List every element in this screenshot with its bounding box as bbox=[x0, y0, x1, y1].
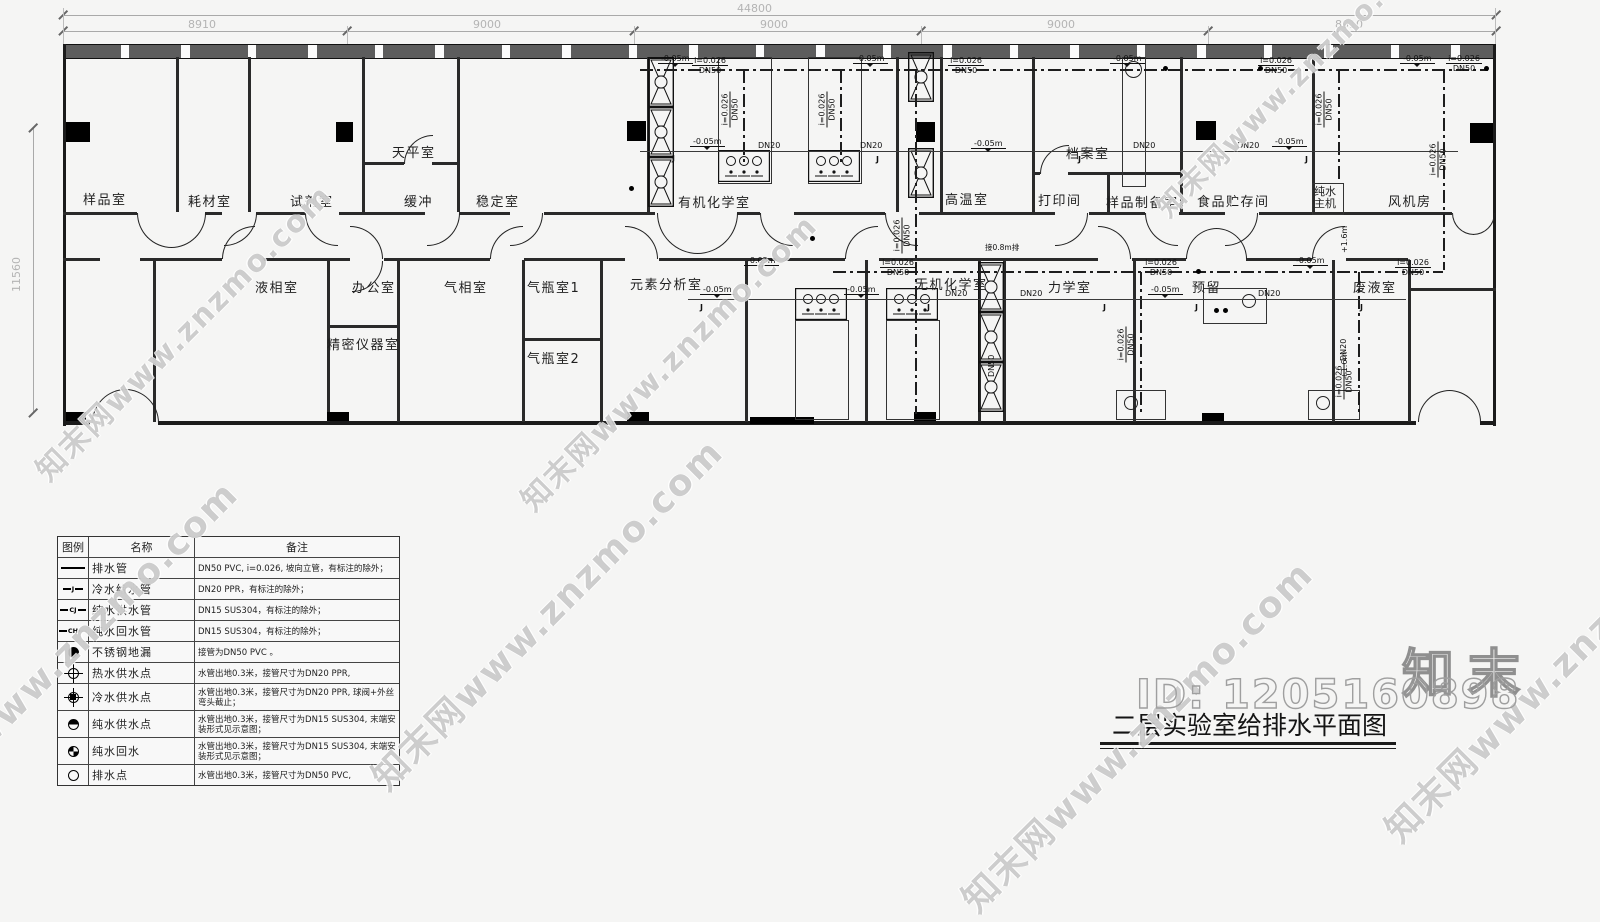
wall bbox=[339, 212, 425, 215]
elevation-marker: -0.05m bbox=[1400, 54, 1435, 64]
dim-total-label: 44800 bbox=[737, 2, 772, 15]
elevation-marker: -0.05m bbox=[1110, 54, 1145, 64]
pipe-slope-size-label: i=0.026DN50 bbox=[1446, 54, 1482, 73]
column bbox=[327, 412, 349, 421]
legend-note: 接管为DN50 PVC 。 bbox=[198, 646, 278, 658]
legend-name: 纯水供水点 bbox=[88, 711, 194, 737]
slope-label: i=0.026 bbox=[880, 258, 916, 268]
cold-water-pipe bbox=[688, 299, 1406, 300]
room-label-precision-instrument: 精密仪器室 bbox=[327, 334, 400, 353]
cold-water-mark: J bbox=[927, 303, 930, 312]
pipe-size-label: DN20 bbox=[758, 141, 780, 150]
legend-note: DN15 SUS304，有标注的除外； bbox=[198, 625, 326, 637]
room-label-food-storage: 食品贮存间 bbox=[1197, 191, 1270, 210]
pipe-slope-size-label: i=0.026DN50 bbox=[893, 218, 912, 254]
pipe-size-label: DN50 bbox=[987, 355, 996, 377]
door-arc bbox=[845, 226, 878, 259]
legend-symbol-drain-line bbox=[58, 558, 88, 578]
door-arc bbox=[657, 213, 698, 254]
sink-bench-icon bbox=[808, 150, 860, 182]
pure-water-return-icon bbox=[68, 746, 79, 757]
legend-name: 纯水回水 bbox=[88, 738, 194, 764]
sink-bench-icon bbox=[795, 288, 847, 320]
legend-note: 水管出地0.3米，接管尺寸为DN50 PVC, bbox=[198, 769, 351, 781]
dim-seg-label: 9000 bbox=[473, 18, 501, 31]
pipe-size-label: DN50 bbox=[903, 218, 912, 254]
room-label-reserved: 预留 bbox=[1192, 277, 1221, 296]
elevation-marker: -0.05m bbox=[658, 54, 693, 64]
pipe-slope-size-label: i=0.026DN50 bbox=[880, 258, 916, 277]
room-label-gas-phase: 气相室 bbox=[444, 277, 488, 296]
pipe-size-label: DN20 bbox=[1258, 289, 1280, 298]
wall bbox=[1089, 212, 1145, 215]
room-label-fan-room: 风机房 bbox=[1388, 191, 1432, 210]
column bbox=[1470, 123, 1493, 143]
elevation-marker: -0.05m bbox=[1272, 137, 1307, 147]
pipe-size-label: DN50 bbox=[1395, 268, 1431, 277]
cold-water-pipe bbox=[640, 151, 1458, 152]
wall bbox=[919, 212, 1055, 215]
pipe-slope-size-label: i=0.026DN50 bbox=[721, 92, 740, 128]
elevation-marker: -0.05m bbox=[1293, 256, 1328, 266]
legend-row: 热水供水点 水管出地0.3米，接管尺寸为DN20 PPR, bbox=[58, 662, 399, 683]
cold-water-point-icon bbox=[68, 692, 79, 703]
tap-point-icon bbox=[1223, 308, 1228, 313]
connection-note: 接0.8m排 bbox=[985, 243, 1019, 252]
room-label-balance: 天平室 bbox=[392, 142, 436, 161]
cold-water-mark: J bbox=[876, 155, 879, 164]
floor-drain-icon bbox=[1163, 66, 1168, 71]
room-label-print-room: 打印间 bbox=[1038, 190, 1082, 209]
pipe-size-label: DN20 bbox=[1133, 141, 1155, 150]
wall bbox=[544, 212, 655, 215]
door-arc bbox=[1473, 213, 1495, 235]
watermark-id: ID: 1205160898 bbox=[1136, 672, 1520, 718]
room-label-office: 办公室 bbox=[352, 277, 396, 296]
slope-label: i=0.026 bbox=[1315, 92, 1325, 128]
room-label-gas-cylinder-2: 气瓶室2 bbox=[527, 348, 580, 367]
pipe-size-label: DN50 bbox=[828, 92, 837, 128]
drain-pipe bbox=[640, 69, 1488, 71]
wall bbox=[1408, 260, 1411, 422]
fume-hood-icon bbox=[648, 157, 674, 207]
pipe-slope-size-label: i=0.026DN50 bbox=[948, 56, 984, 75]
drain-pipe bbox=[915, 70, 917, 414]
legend-header-symbol: 图例 bbox=[58, 537, 88, 557]
elevation-marker: -0.05m bbox=[971, 139, 1006, 149]
exterior-wall-left bbox=[63, 44, 66, 426]
room-label-waste-liquid: 废液室 bbox=[1353, 277, 1397, 296]
door-arc bbox=[1055, 213, 1088, 246]
pipe-slope-size-label: i=0.026DN50 bbox=[692, 56, 728, 75]
pipe-slope-size-label: i=0.026DN50 bbox=[1143, 258, 1179, 277]
legend-note: DN15 SUS304，有标注的除外； bbox=[198, 604, 326, 616]
pipe-slope-size-label: i=0.026DN50 bbox=[1395, 258, 1431, 277]
cold-water-mark: J bbox=[1305, 155, 1308, 164]
pipe-slope-size-label: i=0.026DN50 bbox=[1429, 142, 1448, 178]
wall bbox=[522, 338, 602, 341]
wall bbox=[362, 57, 365, 212]
pipe-size-label: DN50 bbox=[1127, 327, 1136, 363]
column bbox=[627, 121, 646, 141]
elevation-marker: -0.05m bbox=[690, 137, 725, 147]
pipe-slope-size-label: i=0.026DN50 bbox=[1315, 92, 1334, 128]
drain-pipe bbox=[833, 271, 1443, 273]
drain-pipe bbox=[1140, 272, 1142, 412]
pipe-slope-size-label: i=0.026DN50 bbox=[818, 92, 837, 128]
filled-center bbox=[70, 694, 76, 700]
dim-extension bbox=[1208, 26, 1209, 44]
legend-note: DN50 PVC, i=0.026, 坡向立管，有标注的除外； bbox=[198, 562, 388, 574]
fume-hood-icon bbox=[908, 48, 934, 106]
lab-bench bbox=[795, 320, 849, 420]
pipe-size-label: DN50 bbox=[692, 66, 728, 75]
slope-label: i=0.026 bbox=[721, 92, 731, 128]
legend-row: 冷水供水点 水管出地0.3米，接管尺寸为DN20 PPR, 球阀+外丝弯头截止； bbox=[58, 683, 399, 710]
slope-label: i=0.026 bbox=[1395, 258, 1431, 268]
legend-name: 排水点 bbox=[88, 765, 194, 785]
dim-extension bbox=[1495, 8, 1496, 44]
slope-label: i=0.026 bbox=[1429, 142, 1439, 178]
wall bbox=[737, 212, 760, 215]
drain-point-icon bbox=[1316, 396, 1330, 410]
door-arc bbox=[1098, 226, 1131, 259]
wall bbox=[522, 260, 525, 422]
wall bbox=[362, 162, 404, 165]
legend-note: 水管出地0.3米，接管尺寸为DN15 SUS304, 末端安装形式见示意图； bbox=[198, 713, 396, 735]
pipe-size-label: DN50 bbox=[880, 268, 916, 277]
dim-seg-label: 9000 bbox=[760, 18, 788, 31]
wall bbox=[63, 258, 100, 261]
drain-point-icon bbox=[1242, 294, 1256, 308]
wall bbox=[459, 212, 510, 215]
pipe-size-label: DN50 bbox=[1143, 268, 1179, 277]
wall bbox=[176, 57, 179, 212]
column bbox=[66, 122, 90, 142]
wall bbox=[63, 212, 137, 215]
tap-point-icon bbox=[1214, 308, 1219, 313]
legend-note: 水管出地0.3米，接管尺寸为DN20 PPR, 球阀+外丝弯头截止； bbox=[198, 686, 396, 708]
door-arc bbox=[1040, 145, 1069, 174]
drain-point-icon bbox=[68, 770, 79, 781]
floor-drain-icon bbox=[1196, 269, 1201, 274]
legend-symbol-pure-return-point bbox=[58, 738, 88, 764]
room-label-consumables: 耗材室 bbox=[188, 191, 232, 210]
legend-row: 纯水供水点 水管出地0.3米，接管尺寸为DN15 SUS304, 末端安装形式见… bbox=[58, 710, 399, 737]
cold-water-mark: J bbox=[672, 154, 675, 163]
door-arc bbox=[171, 213, 206, 248]
dim-extension bbox=[921, 26, 922, 44]
dim-line-segments bbox=[63, 31, 1496, 32]
dim-extension bbox=[634, 26, 635, 44]
slope-label: i=0.026 bbox=[1143, 258, 1179, 268]
elevation-marker: -0.05m bbox=[1148, 285, 1183, 295]
pipe-size-label: DN50 bbox=[731, 92, 740, 128]
room-label-elemental-analysis: 元素分析室 bbox=[630, 274, 703, 293]
room-label-buffer: 缓冲 bbox=[404, 191, 433, 210]
drain-point-icon bbox=[1124, 396, 1138, 410]
wall bbox=[457, 57, 460, 212]
legend-note: DN20 PPR，有标注的除外； bbox=[198, 583, 309, 595]
pipe-size-label: DN20 bbox=[860, 141, 882, 150]
room-label-archive: 档案室 bbox=[1066, 143, 1110, 162]
slope-label: i=0.026 bbox=[1117, 327, 1127, 363]
cold-water-mark: J bbox=[1360, 303, 1363, 312]
room-label-sample: 样品室 bbox=[83, 189, 127, 208]
dim-seg-label: 9000 bbox=[1047, 18, 1075, 31]
cold-water-mark: J bbox=[1103, 303, 1106, 312]
legend-row: 不锈钢地漏 接管为DN50 PVC 。 bbox=[58, 641, 399, 662]
legend-symbol-drain-point bbox=[58, 765, 88, 785]
elevation-marker: -0.05m bbox=[853, 54, 888, 64]
floor-drain-icon bbox=[629, 186, 634, 191]
line-icon bbox=[63, 588, 71, 590]
door-arc bbox=[625, 226, 658, 259]
legend-name: 热水供水点 bbox=[88, 663, 194, 683]
room-label-mechanics: 力学室 bbox=[1048, 277, 1092, 296]
door-arc bbox=[1186, 228, 1217, 259]
pipe-slope-size-label: i=0.026DN50 bbox=[1117, 327, 1136, 363]
column bbox=[916, 122, 935, 142]
door-arc bbox=[427, 213, 460, 246]
door-arc bbox=[697, 213, 738, 254]
dim-extension bbox=[347, 26, 348, 44]
pipe-size-label: DN50 bbox=[1439, 142, 1448, 178]
exterior-wall-bottom bbox=[1480, 421, 1496, 425]
wall bbox=[384, 258, 490, 261]
door-arc bbox=[490, 226, 523, 259]
room-label-pure-water-host: 纯水主机 bbox=[1314, 186, 1340, 210]
pipe-size-label: DN50 bbox=[1446, 64, 1482, 73]
door-arc bbox=[1452, 213, 1474, 235]
room-label-high-temp: 高温室 bbox=[945, 189, 989, 208]
slope-label: i=0.026 bbox=[1446, 54, 1482, 64]
legend-row: 排水点 水管出地0.3米，接管尺寸为DN50 PVC, bbox=[58, 764, 399, 785]
wall bbox=[524, 258, 625, 261]
slope-label: i=0.026 bbox=[692, 56, 728, 66]
line-letter: J bbox=[72, 585, 74, 593]
fume-hood-icon bbox=[648, 57, 674, 107]
wall bbox=[432, 162, 457, 165]
column bbox=[336, 122, 353, 142]
slope-label: i=0.026 bbox=[818, 92, 828, 128]
fume-hood-icon bbox=[648, 107, 674, 157]
room-label-inorganic-chem: 无机化学室 bbox=[915, 274, 988, 293]
dim-seg-label: 8910 bbox=[188, 18, 216, 31]
line-icon bbox=[75, 588, 83, 590]
legend-symbol-pure-supply-point bbox=[58, 711, 88, 737]
pipe-size-label: DN20 bbox=[1020, 289, 1042, 298]
slope-label: i=0.026 bbox=[948, 56, 984, 66]
room-label-stability: 稳定室 bbox=[476, 191, 520, 210]
door-arc bbox=[1449, 390, 1481, 422]
wall bbox=[248, 57, 251, 212]
wall bbox=[896, 57, 899, 212]
drain-pipe bbox=[743, 70, 745, 162]
drain-line-icon bbox=[61, 567, 85, 569]
exterior-wall-right bbox=[1493, 44, 1496, 426]
elevation-label: +1.6m bbox=[1340, 226, 1349, 253]
legend-header-note: 备注 bbox=[194, 537, 399, 557]
legend-header-row: 图例 名称 备注 bbox=[58, 537, 399, 557]
room-label-organic-chem: 有机化学室 bbox=[678, 192, 751, 211]
door-arc bbox=[1418, 390, 1450, 422]
wall bbox=[940, 57, 943, 212]
drain-pipe bbox=[1338, 70, 1340, 182]
column bbox=[1202, 413, 1224, 421]
wall bbox=[794, 212, 885, 215]
pipe-size-label: DN50 bbox=[948, 66, 984, 75]
drain-pipe bbox=[840, 70, 842, 162]
floor-drain-icon bbox=[1484, 66, 1489, 71]
wall bbox=[1032, 57, 1035, 212]
room-label-gas-cylinder-1: 气瓶室1 bbox=[527, 277, 580, 296]
wall bbox=[1032, 172, 1040, 175]
wall bbox=[1408, 288, 1496, 291]
elevation-label: +1.6m bbox=[1340, 352, 1349, 379]
elevation-marker: -0.05m bbox=[844, 285, 879, 295]
cold-water-mark: J bbox=[1195, 303, 1198, 312]
legend-name: 冷水供水点 bbox=[88, 684, 194, 710]
dim-extension bbox=[63, 8, 64, 44]
legend-row: 纯水回水 水管出地0.3米，接管尺寸为DN15 SUS304, 末端安装形式见示… bbox=[58, 737, 399, 764]
wall bbox=[1259, 212, 1452, 215]
dim-line-total bbox=[63, 15, 1496, 16]
door-arc bbox=[137, 213, 172, 248]
door-arc bbox=[350, 226, 383, 259]
wall bbox=[327, 325, 399, 328]
wall bbox=[205, 212, 222, 215]
dim-line-left bbox=[33, 128, 34, 413]
slope-label: i=0.026 bbox=[893, 218, 903, 254]
pure-water-supply-icon bbox=[68, 719, 79, 730]
pipe-size-label: DN50 bbox=[1325, 92, 1334, 128]
legend-note: 水管出地0.3米，接管尺寸为DN20 PPR, bbox=[198, 667, 350, 679]
lab-bench bbox=[886, 320, 940, 420]
dim-left-label: 11560 bbox=[10, 257, 23, 292]
